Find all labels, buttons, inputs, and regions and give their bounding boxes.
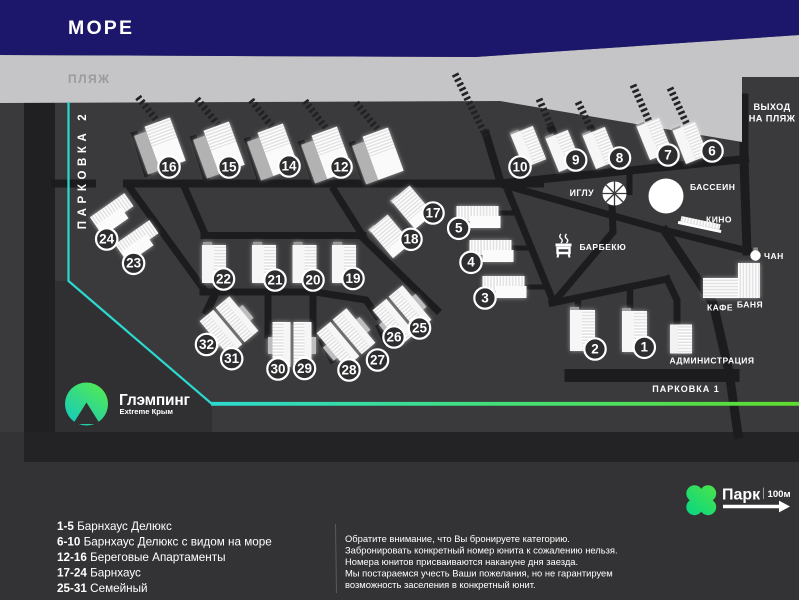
svg-text:17: 17 (425, 205, 440, 220)
svg-text:9: 9 (572, 152, 580, 167)
svg-text:Номера юнитов присваиваются на: Номера юнитов присваиваются накануне дня… (345, 556, 578, 567)
svg-text:АДМИНИСТРАЦИЯ: АДМИНИСТРАЦИЯ (669, 356, 754, 366)
svg-text:20: 20 (305, 272, 320, 287)
svg-text:16: 16 (161, 159, 177, 174)
svg-text:17-24 Барнхаус: 17-24 Барнхаус (57, 567, 141, 580)
svg-text:ВЫХОД: ВЫХОД (753, 102, 790, 112)
svg-text:21: 21 (267, 272, 283, 287)
svg-text:14: 14 (281, 158, 297, 173)
svg-text:7: 7 (664, 147, 672, 162)
svg-text:12: 12 (333, 159, 348, 174)
svg-text:5: 5 (455, 221, 463, 236)
svg-text:БАССЕИН: БАССЕИН (690, 182, 735, 192)
svg-text:БАНЯ: БАНЯ (737, 300, 763, 310)
svg-text:4: 4 (467, 255, 475, 270)
svg-text:24: 24 (99, 231, 115, 246)
svg-text:12-16 Береговые Апартаменты: 12-16 Береговые Апартаменты (57, 551, 226, 564)
svg-text:18: 18 (403, 232, 419, 247)
svg-text:28: 28 (341, 362, 357, 377)
svg-text:25-31 Семейный: 25-31 Семейный (57, 582, 148, 595)
svg-text:6-10 Барнхаус Делюкс с видом н: 6-10 Барнхаус Делюкс с видом на море (57, 536, 272, 549)
svg-text:МОРЕ: МОРЕ (68, 17, 134, 39)
svg-text:возможность заселения в конкре: возможность заселения в конкретный юнит. (345, 579, 536, 590)
svg-text:Мы постараемся учесть Ваши пож: Мы постараемся учесть Ваши пожелания, но… (345, 568, 613, 579)
svg-text:19: 19 (345, 271, 360, 286)
svg-text:БАРБЕКЮ: БАРБЕКЮ (580, 242, 627, 252)
svg-text:Забронировать конкретный номер: Забронировать конкретный номер юнита к с… (345, 545, 618, 556)
svg-text:26: 26 (386, 329, 402, 344)
svg-text:Extreme Крым: Extreme Крым (120, 407, 174, 416)
svg-text:2: 2 (591, 341, 599, 356)
svg-text:ПЛЯЖ: ПЛЯЖ (68, 72, 111, 86)
svg-text:100м: 100м (768, 489, 791, 500)
svg-text:22: 22 (216, 271, 231, 286)
svg-text:23: 23 (126, 256, 142, 271)
svg-text:3: 3 (481, 290, 489, 305)
svg-text:ИГЛУ: ИГЛУ (570, 188, 594, 198)
svg-text:29: 29 (297, 361, 312, 376)
svg-text:15: 15 (221, 159, 237, 174)
svg-text:31: 31 (224, 351, 240, 366)
svg-text:КИНО: КИНО (706, 215, 732, 225)
svg-text:8: 8 (616, 150, 624, 165)
svg-text:30: 30 (270, 361, 285, 376)
svg-text:Обратите внимание, что Вы брон: Обратите внимание, что Вы бронируете кат… (345, 533, 570, 544)
svg-text:НА ПЛЯЖ: НА ПЛЯЖ (749, 114, 796, 124)
svg-text:1-5 Барнхаус Делюкс: 1-5 Барнхаус Делюкс (57, 520, 172, 533)
svg-text:25: 25 (412, 320, 428, 335)
svg-text:ПАРКОВКА 2: ПАРКОВКА 2 (77, 110, 89, 229)
svg-text:6: 6 (708, 143, 716, 158)
svg-text:КАФЕ: КАФЕ (707, 303, 733, 313)
svg-text:ЧАН: ЧАН (764, 251, 784, 261)
svg-text:10: 10 (512, 159, 527, 174)
svg-text:27: 27 (370, 352, 385, 367)
svg-text:ПАРКОВКА 1: ПАРКОВКА 1 (652, 384, 719, 394)
svg-text:32: 32 (199, 337, 214, 352)
svg-text:Парк: Парк (722, 487, 761, 504)
svg-text:1: 1 (641, 340, 649, 355)
